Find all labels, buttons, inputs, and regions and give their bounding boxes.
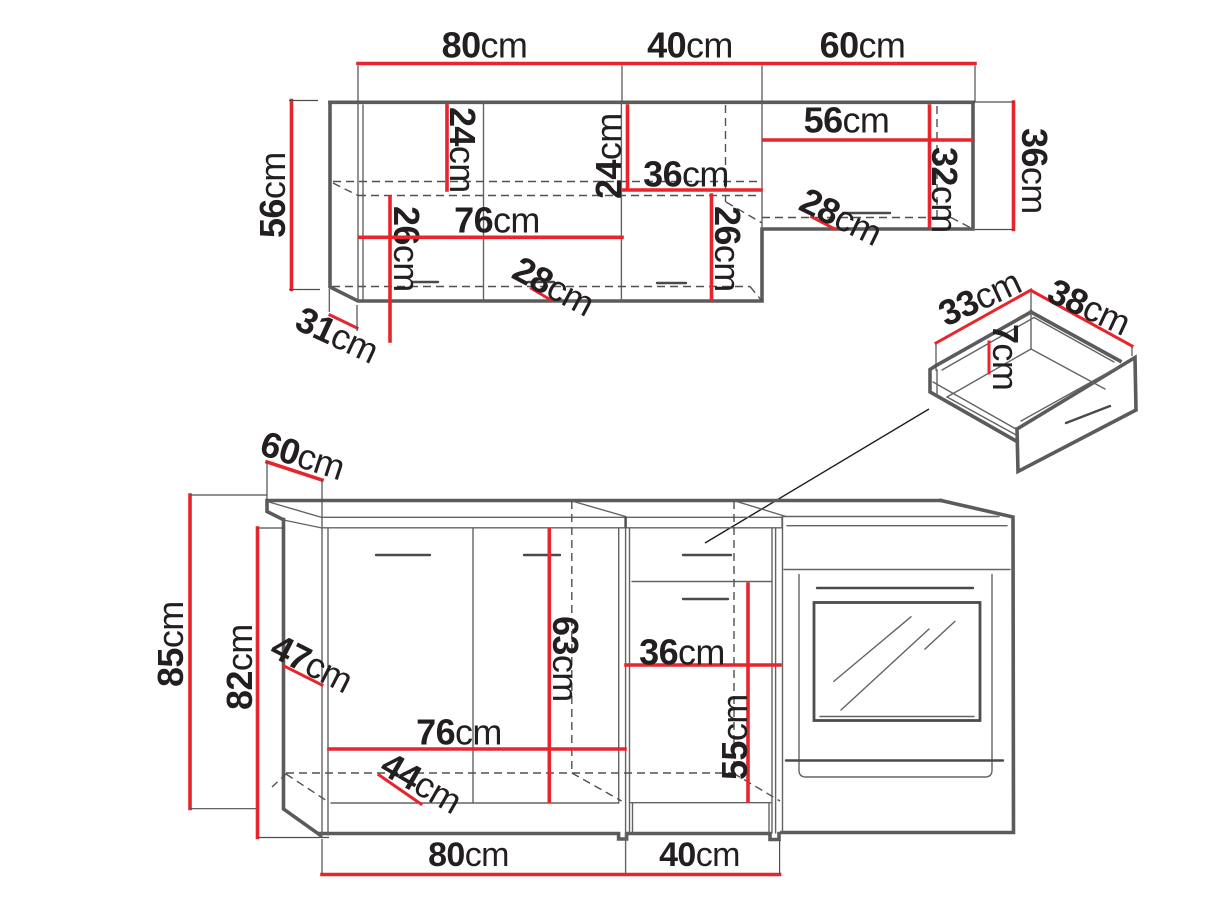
svg-text:60cm: 60cm	[820, 25, 906, 66]
svg-text:76cm: 76cm	[416, 712, 502, 753]
svg-text:55cm: 55cm	[714, 694, 755, 780]
svg-text:63cm: 63cm	[545, 616, 586, 702]
svg-text:76cm: 76cm	[454, 200, 540, 241]
svg-text:80cm: 80cm	[442, 25, 528, 66]
svg-text:60cm: 60cm	[256, 423, 350, 488]
svg-text:44cm: 44cm	[374, 743, 469, 821]
svg-text:47cm: 47cm	[264, 626, 359, 701]
svg-text:26cm: 26cm	[386, 206, 427, 292]
svg-text:36cm: 36cm	[1014, 128, 1055, 214]
svg-text:24cm: 24cm	[442, 107, 483, 193]
svg-text:26cm: 26cm	[707, 206, 748, 292]
svg-text:40cm: 40cm	[647, 25, 733, 66]
svg-text:56cm: 56cm	[252, 152, 293, 238]
svg-text:32cm: 32cm	[924, 147, 965, 233]
svg-text:36cm: 36cm	[643, 154, 729, 195]
svg-text:82cm: 82cm	[219, 624, 260, 710]
svg-text:80cm: 80cm	[428, 836, 509, 874]
svg-text:28cm: 28cm	[506, 248, 601, 324]
svg-text:28cm: 28cm	[793, 179, 888, 253]
svg-text:36cm: 36cm	[639, 632, 725, 673]
svg-text:40cm: 40cm	[659, 836, 740, 874]
svg-text:24cm: 24cm	[588, 113, 629, 199]
svg-text:31cm: 31cm	[290, 298, 385, 371]
svg-text:7cm: 7cm	[985, 324, 1026, 390]
svg-text:38cm: 38cm	[1042, 270, 1137, 343]
svg-text:56cm: 56cm	[804, 100, 890, 141]
svg-text:85cm: 85cm	[150, 601, 191, 687]
